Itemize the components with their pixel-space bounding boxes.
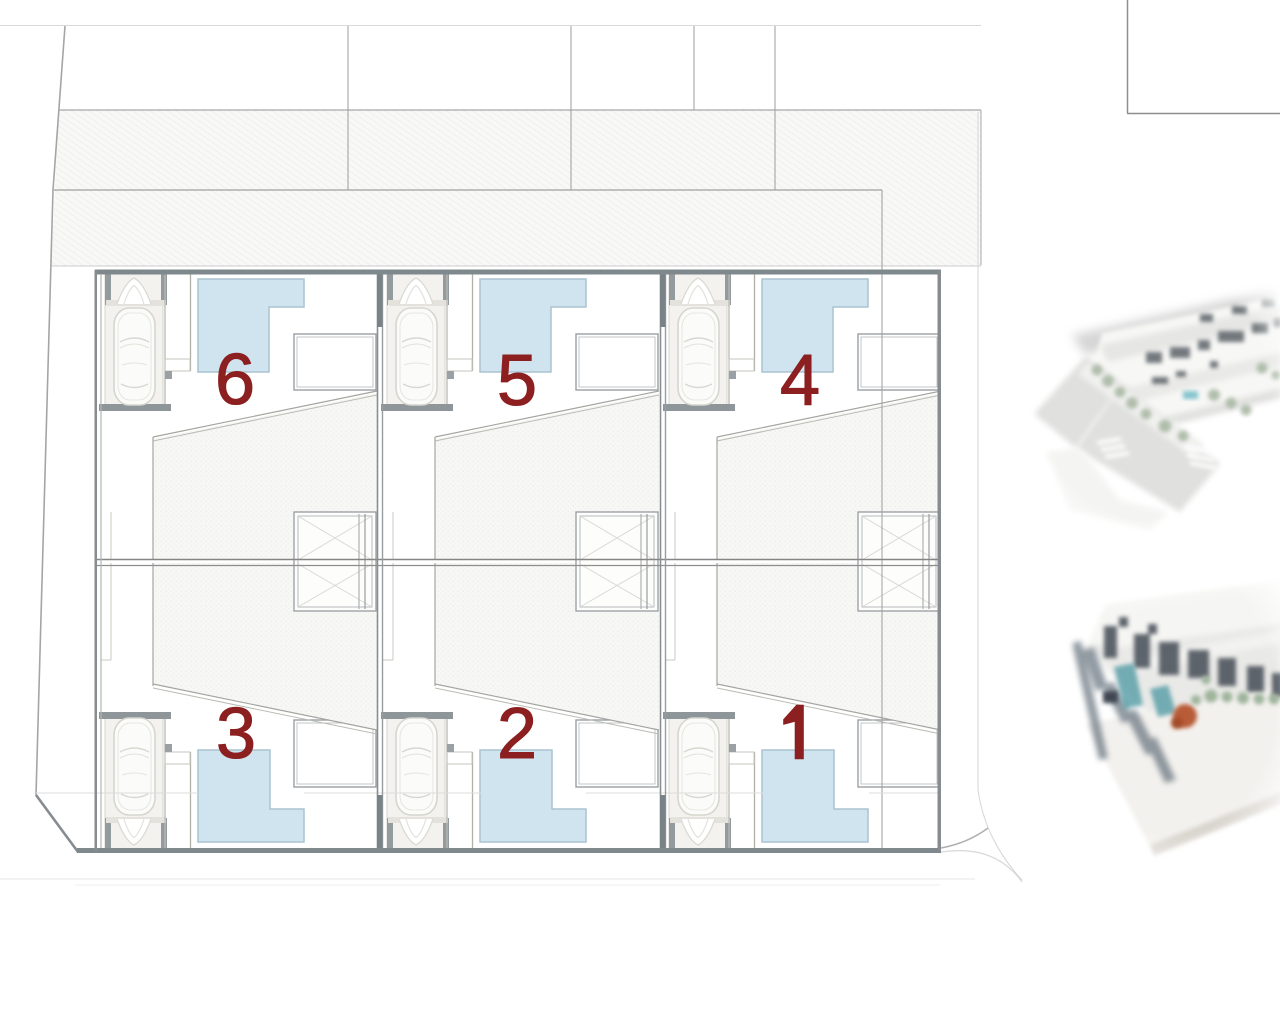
svg-text:6: 6	[215, 340, 255, 420]
svg-text:3: 3	[216, 694, 256, 774]
svg-text:2: 2	[497, 694, 537, 774]
svg-text:4: 4	[780, 341, 820, 421]
svg-text:5: 5	[497, 341, 537, 421]
